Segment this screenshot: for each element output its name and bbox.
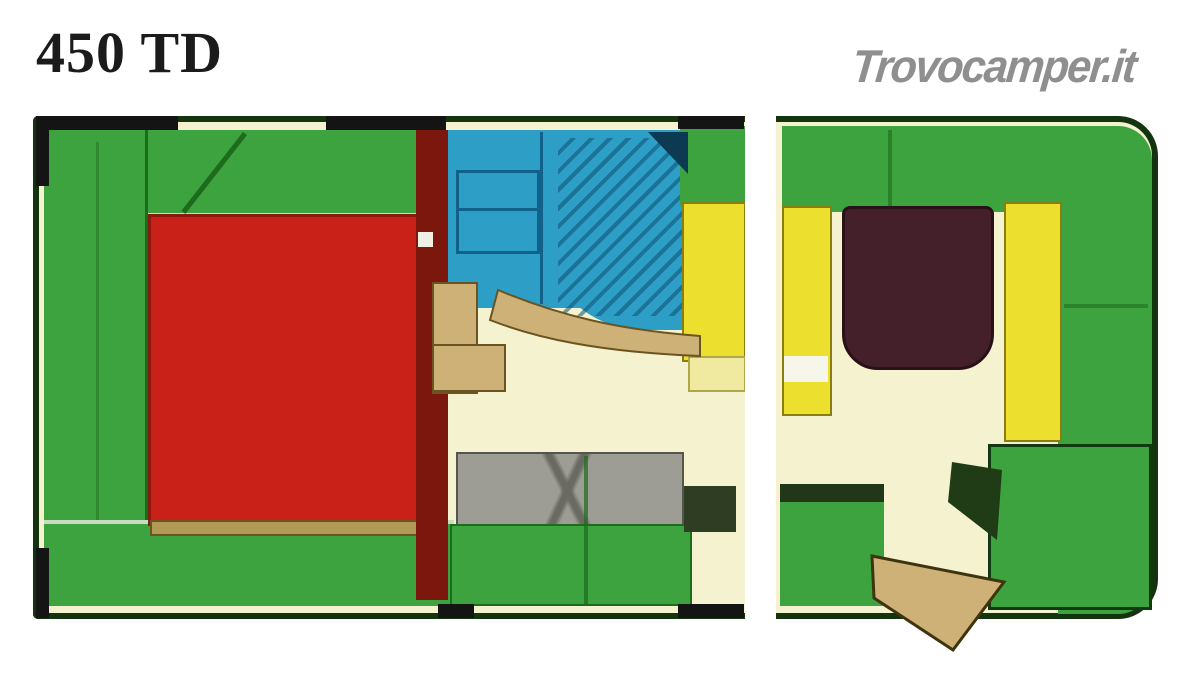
sofa-side-cabinet bbox=[684, 486, 736, 532]
model-title: 450 TD bbox=[36, 16, 356, 96]
toilet bbox=[456, 170, 540, 254]
front-table-edge-trim bbox=[150, 520, 418, 536]
window-marker-front-top bbox=[326, 116, 446, 130]
toilet-tank-line bbox=[456, 208, 540, 211]
front-table bbox=[148, 214, 420, 526]
brand-watermark: Trovocamper.it bbox=[849, 36, 1147, 100]
entry-step-lower bbox=[432, 344, 506, 392]
rear-table bbox=[842, 206, 994, 370]
corner-marker-front-tl-h bbox=[36, 116, 178, 130]
corner-marker-front-tl-v bbox=[36, 116, 49, 186]
rear-left-seat-cushion bbox=[782, 206, 832, 416]
image-split-gap bbox=[745, 106, 777, 644]
middle-sofa-seat bbox=[450, 524, 692, 606]
middle-sofa-seam bbox=[584, 456, 588, 604]
window-marker-front-br bbox=[678, 604, 744, 618]
kitchen-unit bbox=[682, 202, 746, 362]
rear-left-cushion-notch bbox=[784, 356, 828, 382]
rear-bottom-bench bbox=[780, 502, 884, 606]
middle-sofa-backrest bbox=[456, 452, 684, 530]
bathroom-divider-line bbox=[540, 132, 543, 304]
window-marker-front-tr bbox=[678, 116, 744, 129]
wardrobe bbox=[988, 444, 1152, 610]
shower-hatch-area bbox=[558, 138, 684, 316]
window-marker-front-bottom bbox=[438, 604, 474, 618]
rear-right-seat-cushion bbox=[1004, 202, 1062, 442]
kitchen-top-bench-segment bbox=[680, 126, 746, 206]
rear-top-bench-seam bbox=[888, 130, 892, 210]
page-background: { "header": { "model_title": "450 TD" },… bbox=[0, 0, 1200, 675]
rear-top-bench bbox=[782, 126, 1084, 212]
rear-right-bench-seam bbox=[1064, 304, 1148, 308]
corner-marker-front-bl-v bbox=[36, 548, 49, 618]
kitchen-worktop-ledge bbox=[688, 356, 746, 392]
partition-door-handle bbox=[418, 232, 433, 247]
